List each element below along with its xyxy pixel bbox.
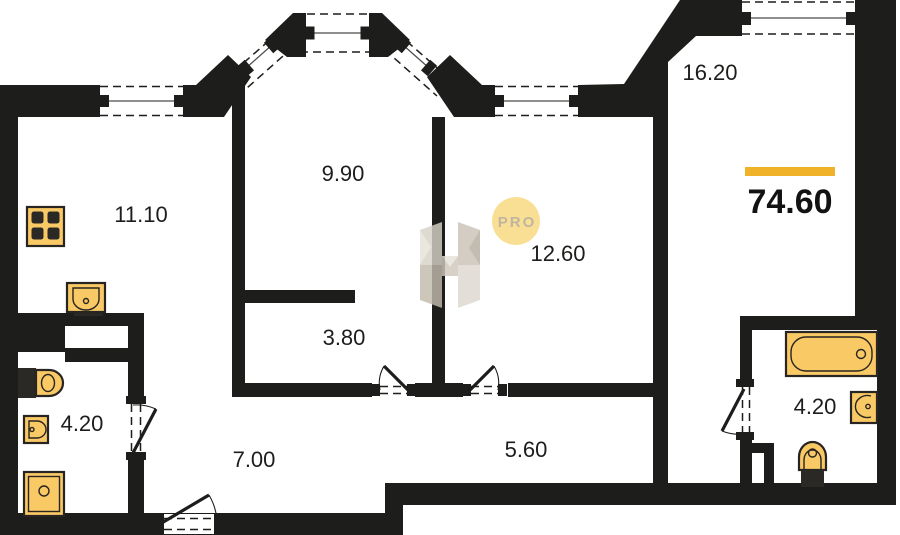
door-bathroom-right	[722, 379, 754, 440]
door-bathroom-left	[126, 396, 156, 460]
door-room-middle	[462, 366, 507, 396]
room-area-label-right: 16.20	[682, 60, 737, 85]
door-corridor	[371, 366, 416, 396]
total-area-label: 74.60	[747, 183, 832, 221]
door-entrance	[153, 495, 225, 535]
pro-badge-text: PRO	[498, 214, 537, 231]
bathtub-icon	[786, 332, 877, 376]
washbasin-right-icon	[851, 392, 877, 423]
room-area-label-middle: 12.60	[530, 241, 585, 266]
room-area-label-bay: 9.90	[322, 161, 365, 186]
kitchen-sink-icon	[67, 283, 105, 316]
window-bay-center	[294, 14, 381, 52]
washbasin-small-icon	[24, 416, 48, 443]
toilet-right-icon	[799, 442, 826, 487]
floor-plan: PRO	[0, 0, 900, 535]
wall-hung-toilet-icon	[18, 368, 63, 398]
window-room-middle	[495, 87, 578, 116]
stove-icon	[27, 207, 64, 246]
room-area-label-kitchen: 11.10	[114, 202, 167, 227]
room-area-label-corridor: 3.80	[323, 325, 366, 350]
total-area: 74.60	[745, 167, 835, 221]
room-area-label-bathroom-right: 4.20	[794, 394, 837, 419]
window-kitchen	[100, 87, 183, 116]
washing-machine-icon	[24, 472, 64, 516]
room-area-label-bathroom-left: 4.20	[61, 411, 104, 436]
total-area-accent-bar	[745, 167, 835, 176]
watermark-pro-badge: PRO	[492, 197, 540, 245]
window-room-right	[742, 2, 855, 34]
watermark-h-icon	[420, 222, 480, 308]
room-area-label-hallway-left: 7.00	[233, 447, 276, 472]
floor-plan-canvas: PRO	[0, 0, 900, 535]
room-area-label-hallway-right: 5.60	[505, 437, 548, 462]
